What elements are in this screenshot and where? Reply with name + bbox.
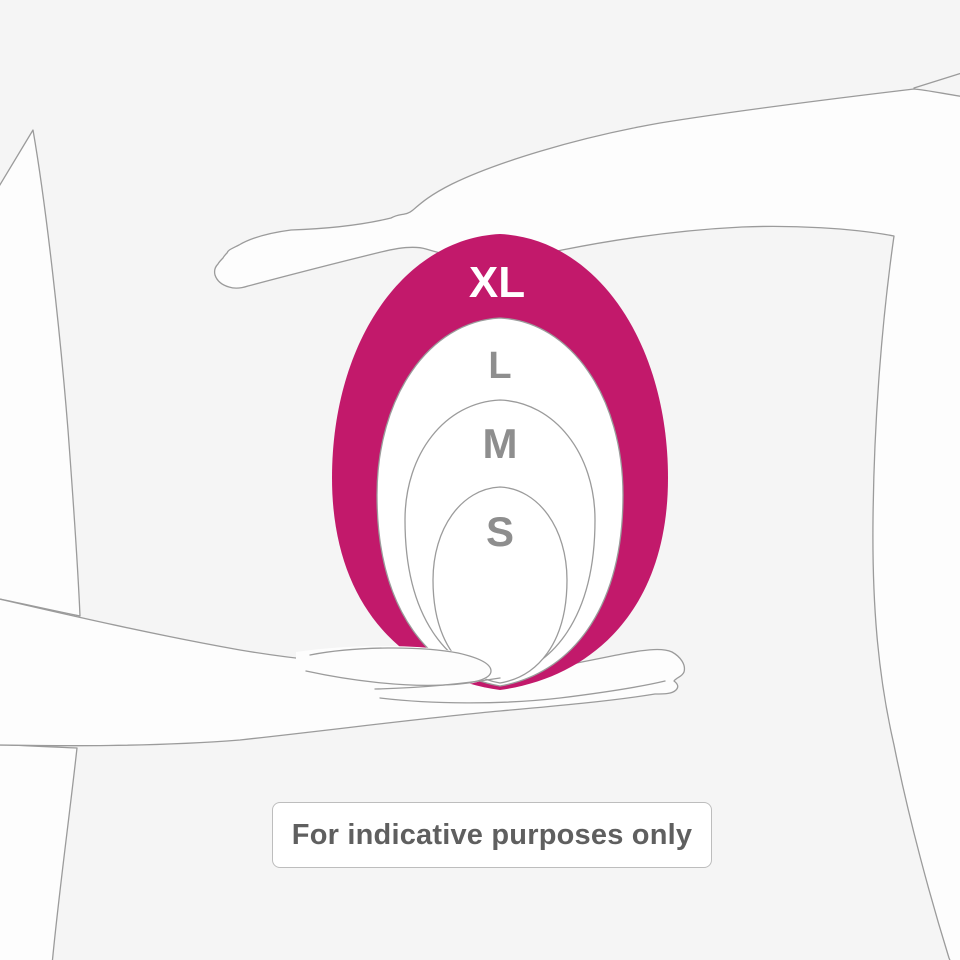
size-guide-illustration: XLLMS For indicative purposes only [0, 0, 960, 960]
egg-label-m: M [483, 420, 518, 467]
egg-label-l: L [488, 345, 511, 387]
caption-box: For indicative purposes only [272, 802, 712, 868]
egg-label-s: S [486, 508, 514, 555]
egg-label-xl: XL [469, 258, 525, 307]
caption-text: For indicative purposes only [292, 819, 692, 852]
